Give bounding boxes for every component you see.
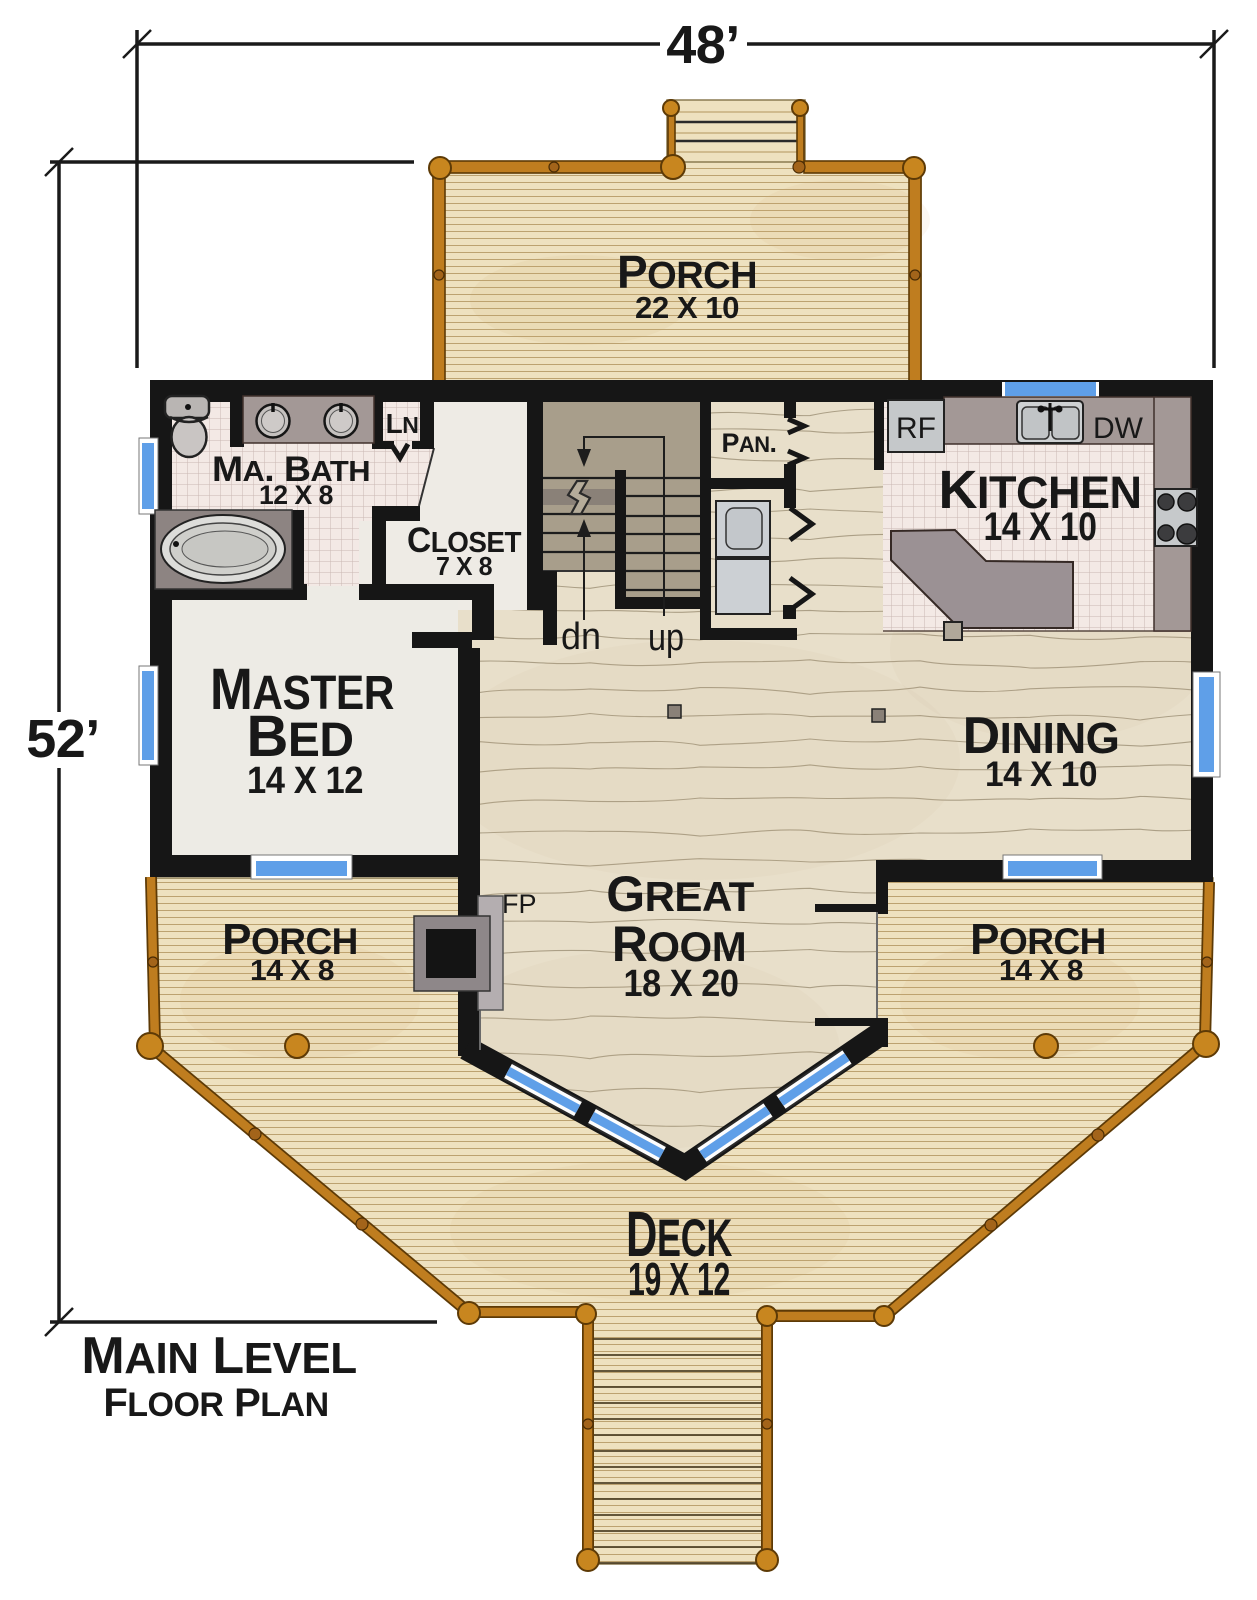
svg-text:MASTER: MASTER: [210, 657, 394, 722]
svg-text:RF: RF: [896, 412, 936, 445]
svg-text:LN: LN: [386, 408, 419, 439]
svg-text:52’: 52’: [26, 709, 100, 769]
svg-text:7 X 8: 7 X 8: [436, 551, 492, 581]
svg-text:14 X 8: 14 X 8: [999, 955, 1083, 987]
svg-text:14 X 8: 14 X 8: [250, 955, 334, 987]
svg-text:FP: FP: [502, 889, 537, 919]
svg-text:19 X 12: 19 X 12: [628, 1253, 730, 1305]
svg-text:PAN.: PAN.: [722, 428, 777, 458]
svg-text:14 X 10: 14 X 10: [985, 755, 1097, 794]
svg-text:12 X 8: 12 X 8: [259, 480, 333, 510]
svg-text:DW: DW: [1093, 412, 1144, 445]
svg-text:14 X 10: 14 X 10: [984, 505, 1097, 549]
svg-text:48’: 48’: [666, 15, 740, 75]
svg-text:dn: dn: [561, 616, 601, 658]
svg-text:GREAT: GREAT: [606, 866, 754, 922]
svg-text:FLOOR PLAN: FLOOR PLAN: [103, 1381, 328, 1425]
svg-text:18 X 20: 18 X 20: [624, 963, 739, 1005]
svg-text:MAIN LEVEL: MAIN LEVEL: [81, 1327, 356, 1385]
svg-text:14 X 12: 14 X 12: [247, 760, 363, 802]
svg-text:22 X 10: 22 X 10: [635, 290, 739, 325]
svg-text:up: up: [648, 617, 684, 659]
